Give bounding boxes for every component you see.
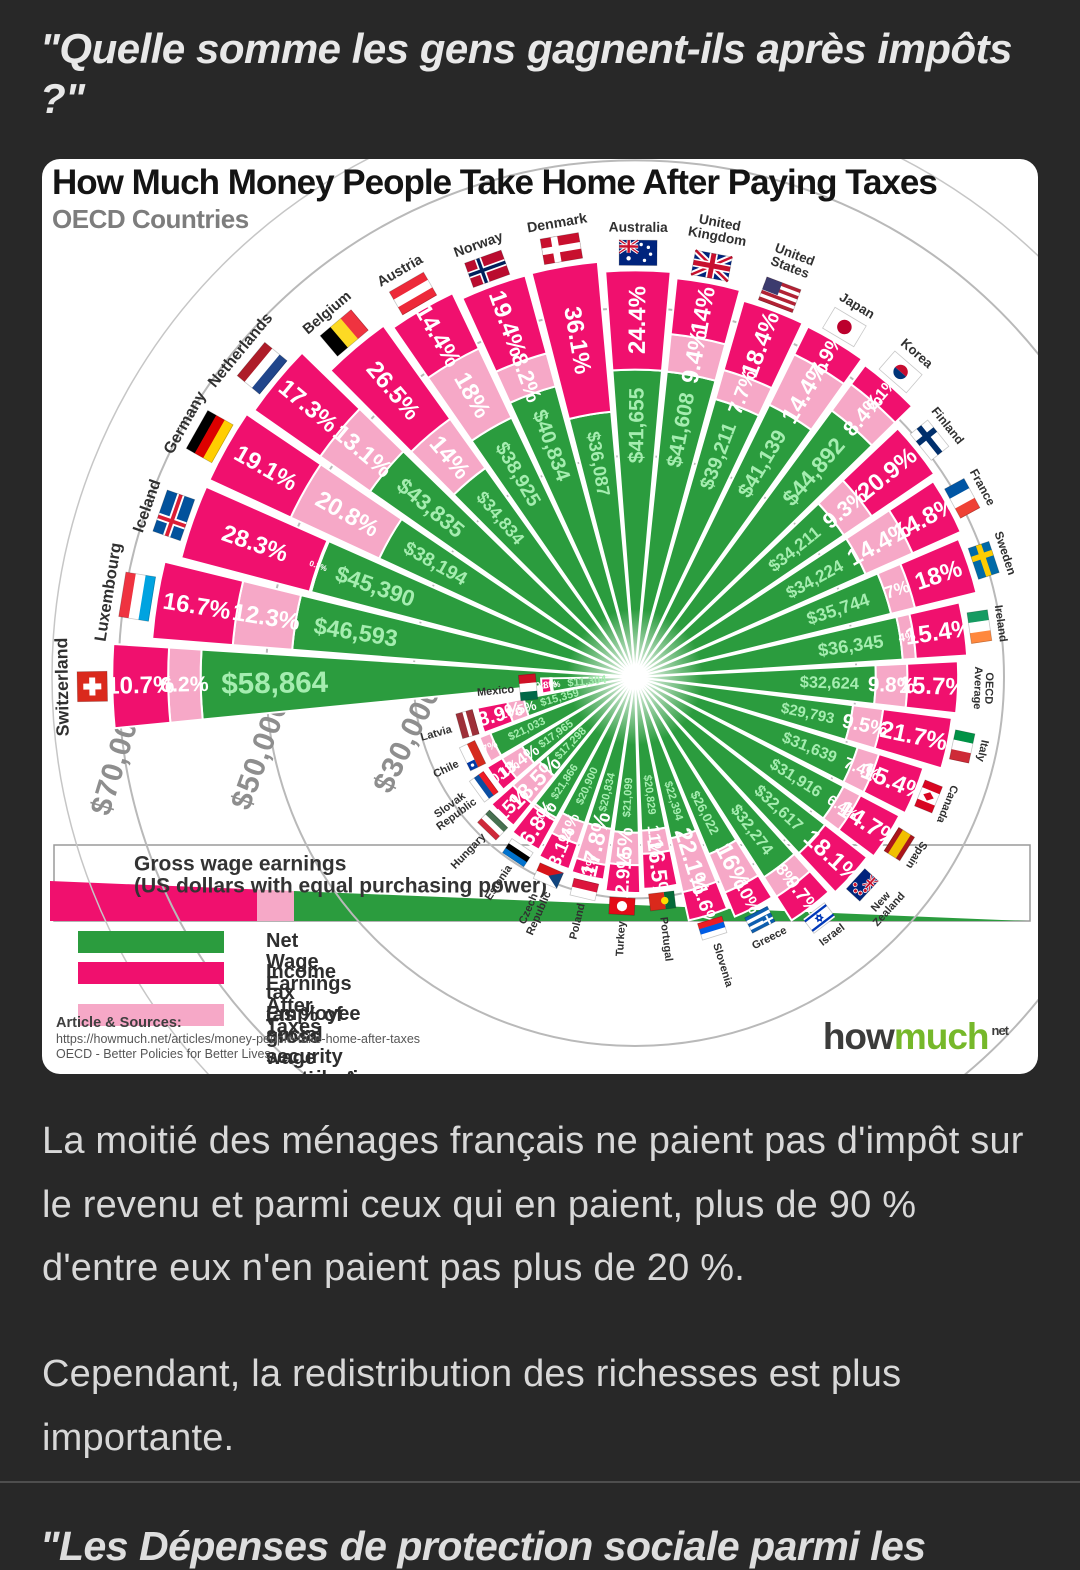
logo-how: how bbox=[823, 1016, 894, 1057]
footer-heading: "Les Dépenses de protection sociale parm… bbox=[40, 1523, 1040, 1570]
sources-block: Article & Sources: https://howmuch.net/a… bbox=[56, 1015, 420, 1061]
country-label-chile: Chile bbox=[431, 758, 460, 781]
country-label-denmark: Denmark bbox=[526, 210, 589, 236]
luxembourg-flag-icon bbox=[119, 572, 156, 621]
divider-line bbox=[0, 1481, 1080, 1483]
sweden-flag-icon bbox=[968, 541, 999, 579]
legend-box-title: Gross wage earnings bbox=[134, 852, 346, 875]
howmuch-logo: howmuchnet bbox=[823, 1016, 1008, 1058]
country-label-slovenia: Slovenia bbox=[710, 942, 735, 990]
denmark-flag-icon bbox=[540, 232, 583, 264]
australia-flag-icon bbox=[619, 240, 657, 265]
page-title: "Quelle somme les gens gagnent-ils après… bbox=[40, 24, 1040, 125]
net-value-label: $32,624 bbox=[799, 673, 860, 693]
paragraph-2: Cependant, la redistribution des richess… bbox=[42, 1343, 1038, 1471]
country-label-united-states: UnitedStates bbox=[768, 240, 817, 281]
italy-flag-icon bbox=[949, 730, 975, 763]
net-wage-swatch bbox=[78, 931, 224, 953]
country-label-united-kingdom: UnitedKingdom bbox=[687, 210, 750, 249]
income-tax-label: 9.8% bbox=[535, 679, 558, 692]
logo-tld: net bbox=[992, 1023, 1009, 1038]
income-tax-swatch bbox=[78, 962, 224, 984]
mexico-flag-icon bbox=[518, 673, 537, 700]
country-label-turkey: Turkey bbox=[614, 920, 628, 957]
turkey-flag-icon bbox=[609, 897, 635, 915]
country-label-oecd-average: OECDAverage bbox=[971, 666, 996, 710]
paragraph-1: La moitié des ménages français ne paient… bbox=[42, 1110, 1038, 1301]
income-tax-label: 10.7% bbox=[106, 671, 175, 699]
country-label-mexico: Mexico bbox=[476, 683, 515, 699]
ireland-flag-icon bbox=[967, 610, 992, 644]
legend-income-tax-label: Income tax bbox=[266, 962, 356, 1005]
country-label-australia: Australia bbox=[609, 218, 669, 234]
portugal-flag-icon bbox=[649, 891, 676, 911]
net-value-label: $41,655 bbox=[625, 387, 649, 463]
country-label-italy: Italy bbox=[974, 738, 990, 763]
sources-url: https://howmuch.net/articles/money-peopl… bbox=[56, 1032, 420, 1046]
country-label-portugal: Portugal bbox=[657, 916, 674, 962]
income-tax-label: 24.4% bbox=[624, 286, 651, 354]
switzerland-flag-icon bbox=[77, 671, 108, 702]
country-label-ireland: Ireland bbox=[992, 604, 1009, 642]
sources-title: Article & Sources: bbox=[56, 1015, 420, 1031]
infographic-card: How Much Money People Take Home After Pa… bbox=[42, 159, 1038, 1074]
net-value-label: $58,864 bbox=[221, 666, 329, 701]
income-tax-label: 15.7% bbox=[898, 672, 967, 701]
logo-much: much bbox=[894, 1016, 989, 1057]
net-value-label: $21,099 bbox=[621, 777, 635, 817]
sources-org: OECD - Better Policies for Better Lives bbox=[56, 1047, 420, 1061]
united-kingdom-flag-icon bbox=[691, 250, 732, 281]
country-label-switzerland: Switzerland bbox=[51, 637, 73, 736]
